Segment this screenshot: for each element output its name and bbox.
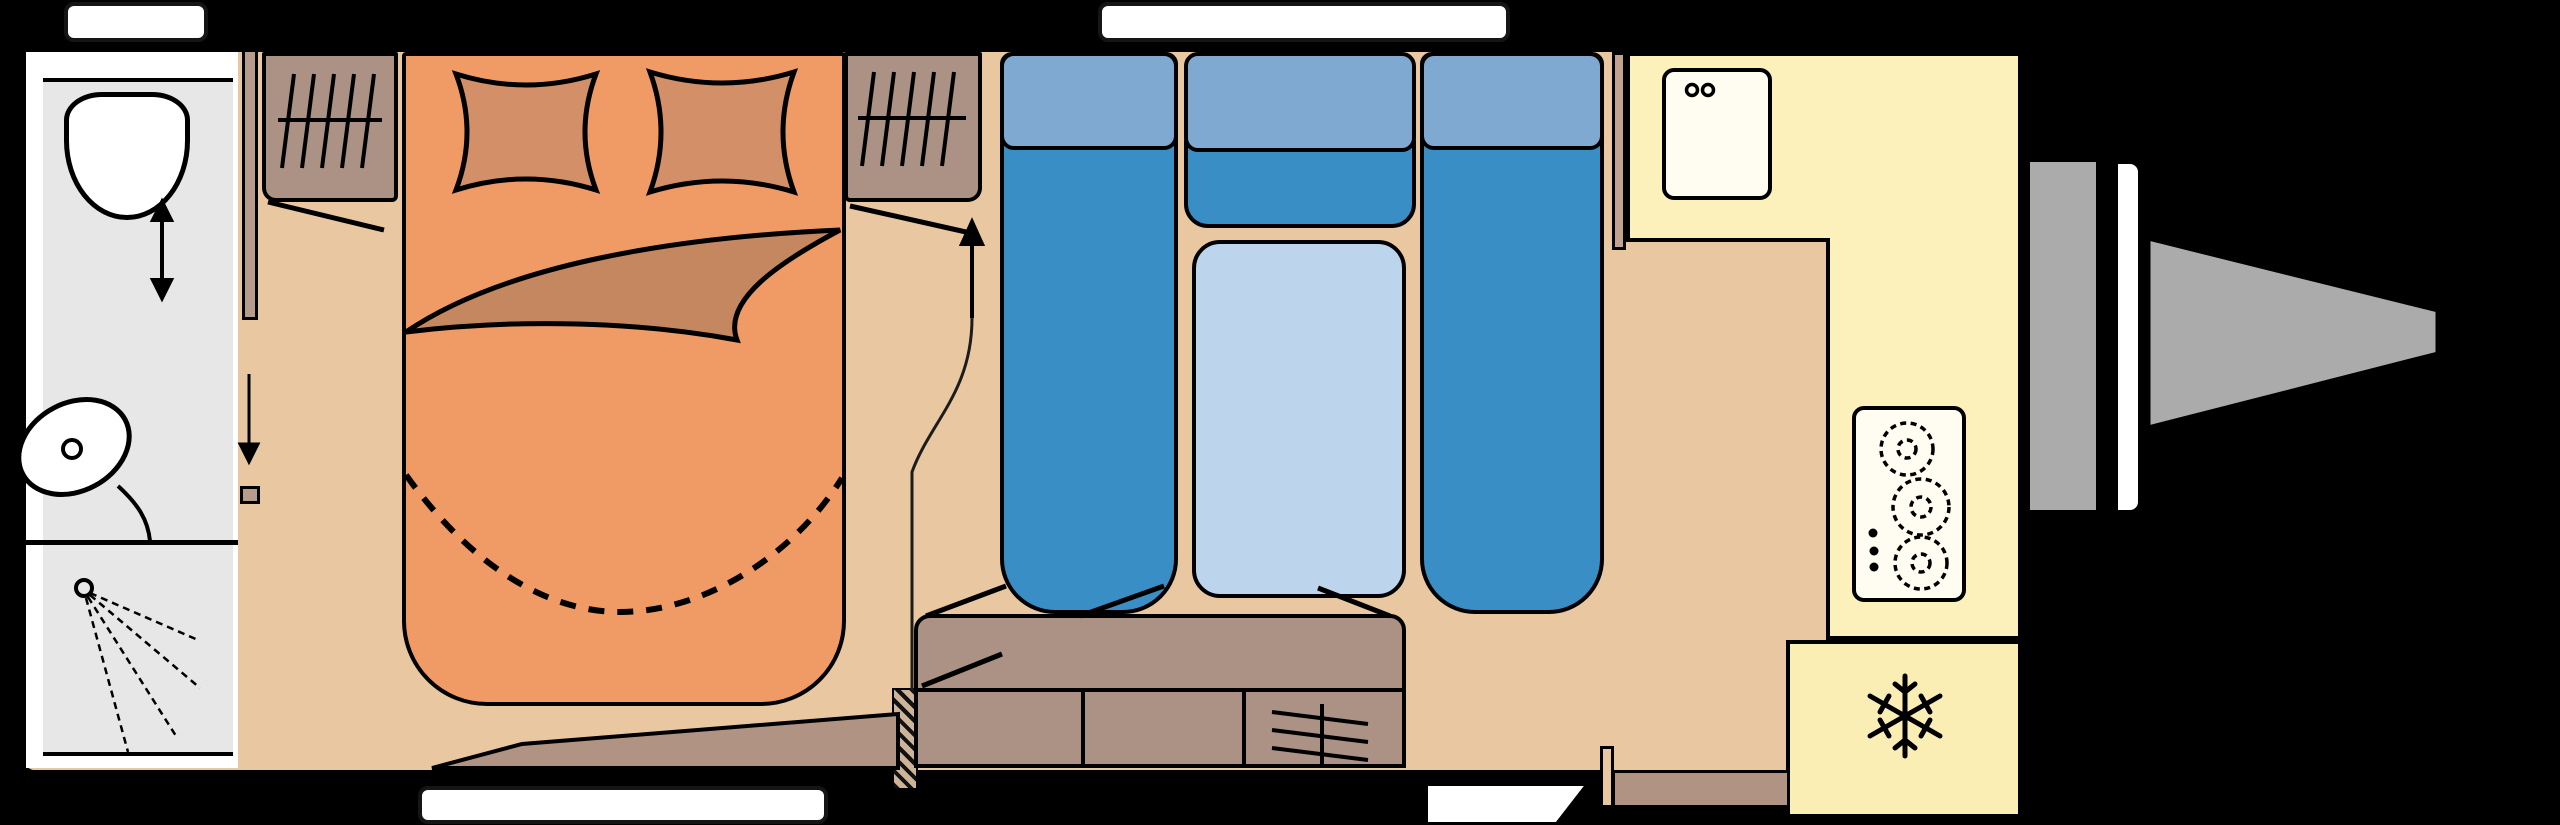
fridge — [1786, 640, 2022, 818]
drawbar-icon — [2148, 238, 2438, 428]
dinette-table — [1192, 240, 1406, 598]
dinette-backrest-middle — [1184, 52, 1416, 152]
wardrobe-left — [262, 52, 398, 202]
caravan-floor-plan — [0, 0, 2560, 825]
dinette-backrest-right — [1420, 52, 1604, 150]
sideboard-cabinet — [914, 614, 1406, 768]
french-bed — [402, 52, 846, 706]
window-icon — [1098, 2, 1510, 42]
bathroom-partition-wall — [242, 52, 258, 320]
hob-icon — [1852, 406, 1966, 602]
window-icon — [64, 2, 208, 42]
kitchen-sink — [1662, 68, 1772, 200]
window-icon — [418, 786, 828, 824]
entrance-threshold — [1612, 770, 1790, 808]
partition-door-stop — [240, 486, 260, 504]
wardrobe-right — [844, 52, 982, 202]
cabinet-divider — [1242, 688, 1246, 768]
gas-locker — [2026, 158, 2100, 514]
cabinet-front-line — [918, 688, 1402, 768]
shower-divider-wall — [26, 540, 238, 545]
dinette-backrest-left — [1000, 52, 1178, 150]
dinette-seat-middle — [1184, 140, 1416, 228]
front-wall-cap — [2114, 160, 2142, 514]
cabinet-divider — [1081, 688, 1085, 768]
entry-step-icon — [1428, 786, 1592, 822]
